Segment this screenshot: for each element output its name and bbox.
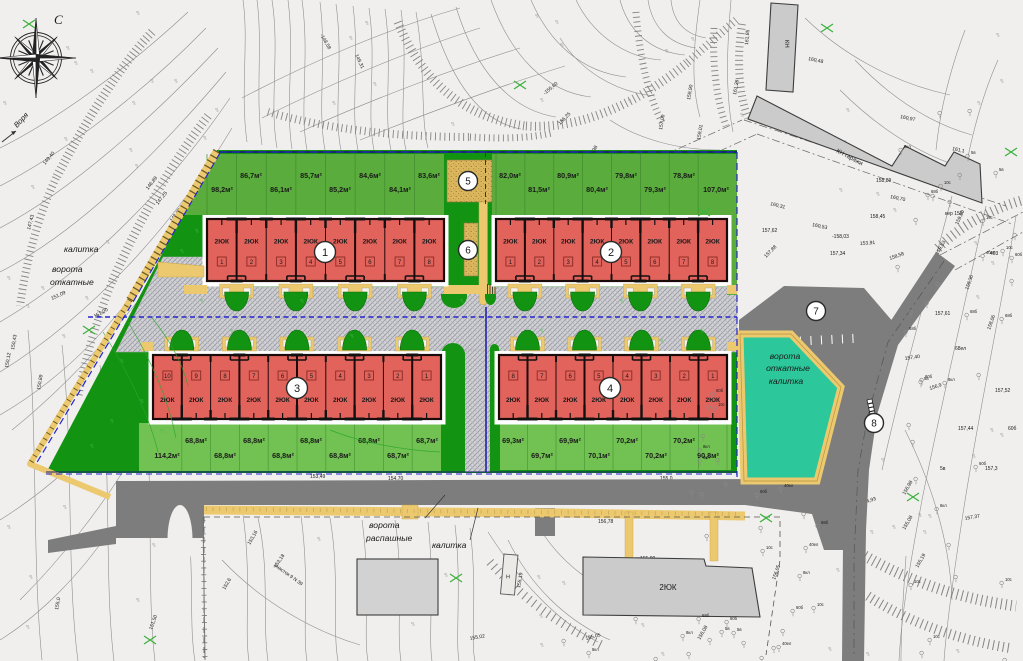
svg-text:2ЮК: 2ЮК xyxy=(304,397,319,404)
svg-text:C: C xyxy=(54,12,63,27)
svg-text:калитка: калитка xyxy=(769,376,804,386)
svg-text:1: 1 xyxy=(322,247,328,259)
svg-text:79,8м²: 79,8м² xyxy=(615,171,637,180)
svg-text:60б: 60б xyxy=(1008,426,1017,432)
svg-text:86,7м²: 86,7м² xyxy=(240,171,262,180)
svg-text:2ЮК: 2ЮК xyxy=(215,239,230,246)
svg-text:2ЮК: 2ЮК xyxy=(705,239,720,246)
svg-text:2ЮК: 2ЮК xyxy=(419,397,434,404)
svg-text:2ЮК: 2ЮК xyxy=(561,239,576,246)
svg-text:69,3м²: 69,3м² xyxy=(502,436,524,445)
svg-text:2ЮК: 2ЮК xyxy=(532,239,547,246)
svg-text:85,2м²: 85,2м² xyxy=(329,185,351,194)
svg-text:153,49: 153,49 xyxy=(310,474,326,480)
svg-text:2: 2 xyxy=(608,247,614,259)
svg-text:2ЮК: 2ЮК xyxy=(392,239,407,246)
svg-text:2ЮК: 2ЮК xyxy=(189,397,204,404)
svg-text:8кл: 8кл xyxy=(803,570,810,575)
svg-text:10с: 10с xyxy=(1005,577,1012,582)
svg-text:10с: 10с xyxy=(1006,245,1013,250)
svg-text:8кл: 8кл xyxy=(948,377,955,382)
svg-text:68,8м²: 68,8м² xyxy=(329,451,351,460)
svg-text:2ЮК: 2ЮК xyxy=(506,397,521,404)
svg-text:3: 3 xyxy=(294,383,300,395)
svg-text:69,7м²: 69,7м² xyxy=(531,451,553,460)
svg-text:кер 150: кер 150 xyxy=(945,211,963,217)
svg-text:2ЮК: 2ЮК xyxy=(422,239,437,246)
svg-text:2ЮК: 2ЮК xyxy=(275,397,290,404)
svg-text:157,52: 157,52 xyxy=(995,388,1011,394)
svg-text:156,78: 156,78 xyxy=(598,519,614,525)
svg-text:68б: 68б xyxy=(909,326,917,331)
svg-text:68,7м²: 68,7м² xyxy=(387,451,409,460)
svg-text:5в: 5в xyxy=(737,627,742,632)
svg-text:калитка: калитка xyxy=(64,244,99,254)
svg-text:98,2м²: 98,2м² xyxy=(211,185,233,194)
svg-text:82,0м²: 82,0м² xyxy=(499,171,521,180)
svg-text:откатные: откатные xyxy=(766,363,810,373)
svg-text:70,2м²: 70,2м² xyxy=(645,451,667,460)
svg-text:40ел: 40ел xyxy=(809,542,819,547)
svg-text:68,8м²: 68,8м² xyxy=(243,436,265,445)
svg-text:2ЮК: 2ЮК xyxy=(503,239,518,246)
svg-text:Н: Н xyxy=(506,574,511,580)
svg-text:ворота: ворота xyxy=(369,520,400,530)
svg-text:114,2м²: 114,2м² xyxy=(154,451,180,460)
svg-text:10с: 10с xyxy=(766,545,773,550)
svg-text:откатные: откатные xyxy=(50,277,94,287)
svg-text:2ЮК: 2ЮК xyxy=(274,239,289,246)
svg-text:2ЮК: 2ЮК xyxy=(676,239,691,246)
svg-text:8: 8 xyxy=(871,419,877,430)
svg-text:60б: 60б xyxy=(796,605,804,610)
svg-text:85,7м²: 85,7м² xyxy=(300,171,322,180)
svg-text:2ЮК: 2ЮК xyxy=(649,397,664,404)
svg-text:2ЮК: 2ЮК xyxy=(362,397,377,404)
svg-text:70,1м²: 70,1м² xyxy=(588,451,610,460)
svg-text:157,3: 157,3 xyxy=(985,466,998,472)
svg-text:86,1м²: 86,1м² xyxy=(270,185,292,194)
svg-text:70,2м²: 70,2м² xyxy=(616,436,638,445)
svg-text:60б: 60б xyxy=(760,489,768,494)
svg-text:10: 10 xyxy=(164,374,171,380)
svg-text:153,91: 153,91 xyxy=(860,240,876,247)
svg-text:8кл: 8кл xyxy=(904,144,911,149)
svg-text:2ЮК: 2ЮК xyxy=(659,583,677,592)
svg-text:2ЮК: 2ЮК xyxy=(563,397,578,404)
svg-text:6: 6 xyxy=(465,246,471,257)
svg-text:10с: 10с xyxy=(817,602,824,607)
svg-text:157,44: 157,44 xyxy=(958,426,974,432)
svg-text:8кл: 8кл xyxy=(703,444,710,449)
svg-text:2ЮК: 2ЮК xyxy=(677,397,692,404)
svg-text:2ЮК: 2ЮК xyxy=(363,239,378,246)
svg-text:60б: 60б xyxy=(716,388,724,393)
svg-text:8кл: 8кл xyxy=(703,455,710,460)
svg-text:158,89: 158,89 xyxy=(876,178,892,184)
svg-text:68,8м²: 68,8м² xyxy=(214,451,236,460)
svg-text:78,8м²: 78,8м² xyxy=(673,171,695,180)
svg-text:80,9м²: 80,9м² xyxy=(557,171,579,180)
svg-text:81,5м²: 81,5м² xyxy=(528,185,550,194)
svg-text:157,34: 157,34 xyxy=(830,251,846,257)
svg-text:40ел: 40ел xyxy=(784,483,794,488)
svg-text:83,6м²: 83,6м² xyxy=(418,171,440,180)
svg-text:7: 7 xyxy=(813,307,819,318)
svg-text:10с: 10с xyxy=(986,215,993,220)
svg-text:68,8м²: 68,8м² xyxy=(185,436,207,445)
svg-text:2ЮК: 2ЮК xyxy=(160,397,175,404)
svg-text:2ЮК: 2ЮК xyxy=(592,397,607,404)
svg-text:8кл: 8кл xyxy=(686,630,693,635)
svg-text:68б: 68б xyxy=(970,309,978,314)
svg-text:68б: 68б xyxy=(821,520,829,525)
svg-text:5: 5 xyxy=(465,177,471,188)
svg-text:157,62: 157,62 xyxy=(762,228,778,234)
svg-text:68,7м²: 68,7м² xyxy=(416,436,438,445)
svg-text:157,61: 157,61 xyxy=(935,311,951,317)
svg-text:68б: 68б xyxy=(931,189,939,194)
svg-text:68б: 68б xyxy=(1005,313,1013,318)
svg-text:ворота: ворота xyxy=(52,264,83,274)
svg-text:2ЮК: 2ЮК xyxy=(333,397,348,404)
svg-text:10с: 10с xyxy=(718,402,725,407)
svg-text:79,3м²: 79,3м² xyxy=(644,185,666,194)
svg-text:-158,03: -158,03 xyxy=(832,234,849,240)
svg-text:8кл: 8кл xyxy=(592,647,599,652)
svg-text:10с: 10с xyxy=(933,634,940,639)
svg-text:107,0м²: 107,0м² xyxy=(703,185,729,194)
svg-text:70,2м²: 70,2м² xyxy=(673,436,695,445)
svg-text:2ЮК: 2ЮК xyxy=(391,397,406,404)
svg-text:2ЮК: 2ЮК xyxy=(619,239,634,246)
svg-text:40ел: 40ел xyxy=(782,641,792,646)
svg-text:5в: 5в xyxy=(971,150,976,155)
svg-text:69,9м²: 69,9м² xyxy=(559,436,581,445)
svg-text:2ЮК: 2ЮК xyxy=(244,239,259,246)
svg-text:5в: 5в xyxy=(999,167,1004,172)
svg-text:68,8м²: 68,8м² xyxy=(300,436,322,445)
svg-text:ворота: ворота xyxy=(770,351,801,361)
svg-text:10с: 10с xyxy=(914,579,921,584)
svg-text:4: 4 xyxy=(607,383,613,395)
svg-text:80,4м²: 80,4м² xyxy=(586,185,608,194)
svg-text:60б: 60б xyxy=(1015,252,1023,257)
svg-text:2ЮК: 2ЮК xyxy=(303,239,318,246)
svg-text:5в: 5в xyxy=(940,466,946,472)
svg-text:68,8м²: 68,8м² xyxy=(272,451,294,460)
svg-text:распашные: распашные xyxy=(365,533,413,543)
svg-text:158,45: 158,45 xyxy=(870,214,886,220)
svg-text:8кл: 8кл xyxy=(940,503,947,508)
svg-text:68б: 68б xyxy=(702,613,710,618)
svg-text:60б: 60б xyxy=(730,616,738,621)
svg-text:2ЮК: 2ЮК xyxy=(218,397,233,404)
svg-text:5в: 5в xyxy=(924,376,929,381)
svg-text:84,6м²: 84,6м² xyxy=(359,171,381,180)
svg-text:2ЮК: 2ЮК xyxy=(648,239,663,246)
svg-text:2ЮК: 2ЮК xyxy=(535,397,550,404)
svg-text:68ел: 68ел xyxy=(955,346,966,352)
svg-text:60б: 60б xyxy=(979,461,987,466)
svg-text:2ЮК: 2ЮК xyxy=(333,239,348,246)
svg-text:2ЮК: 2ЮК xyxy=(247,397,262,404)
svg-text:40ел: 40ел xyxy=(986,250,996,255)
svg-text:5в: 5в xyxy=(725,626,730,631)
svg-text:10с: 10с xyxy=(944,180,951,185)
svg-text:84,1м²: 84,1м² xyxy=(389,185,411,194)
svg-text:калитка: калитка xyxy=(432,540,467,550)
svg-text:2ЮК: 2ЮК xyxy=(620,397,635,404)
svg-text:КН: КН xyxy=(783,40,789,48)
